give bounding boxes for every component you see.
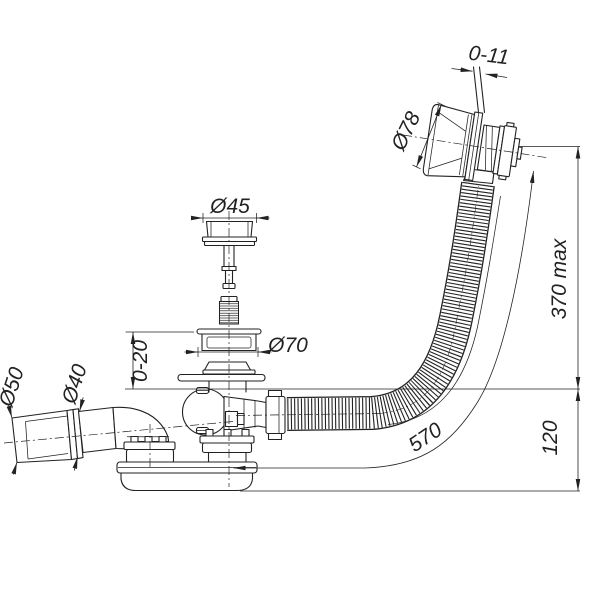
dim-label-overflow-height: 370 max (548, 237, 571, 319)
bath-wall-lines (474, 67, 485, 113)
dim-label-wall-thickness: 0-11 (467, 42, 510, 70)
dim-overflow-height: 370 max (548, 147, 578, 390)
tee-screw-top (197, 388, 209, 394)
flat-washer (178, 375, 265, 382)
dim-label-cap-diameter: Ø78 (387, 108, 426, 155)
dim-label-plug-diameter: Ø45 (209, 195, 250, 218)
hose-body (287, 184, 478, 414)
tee-insert-block (226, 412, 238, 427)
trap-centre-nut (200, 430, 254, 453)
dim-label-pipe-diameter: Ø40 (57, 361, 92, 407)
plug-cap (207, 222, 253, 238)
outlet-socket (12, 411, 72, 463)
trap-neck-lines (209, 453, 247, 463)
waste-plug (203, 222, 257, 325)
plug-seal (205, 242, 255, 246)
trap-cup-bowl (121, 473, 253, 491)
dim-label-flange-diameter: Ø70 (267, 334, 308, 357)
dim-trap-depth: 120 (539, 389, 578, 491)
technical-drawing-canvas: 0-11 Ø78 Ø45 Ø70 0-20 Ø50 Ø40 (0, 0, 600, 600)
corrugated-hose (287, 169, 501, 425)
dim-wall-thickness: 0-11 (452, 42, 511, 78)
plug-flange (203, 237, 257, 242)
outlet-tube (79, 408, 117, 453)
dim-label-hose-length: 570 (404, 418, 446, 457)
dim-plug-diameter: Ø45 (191, 195, 270, 223)
bath-waste-diagram: 0-11 Ø78 Ø45 Ø70 0-20 Ø50 Ø40 (0, 0, 600, 600)
dim-label-trap-depth: 120 (539, 420, 562, 455)
dim-label-flange-height: 0-20 (129, 340, 152, 382)
cone-gasket (205, 362, 251, 370)
dim-label-socket-diameter: Ø50 (0, 364, 29, 410)
waste-flange-assembly (178, 329, 265, 392)
